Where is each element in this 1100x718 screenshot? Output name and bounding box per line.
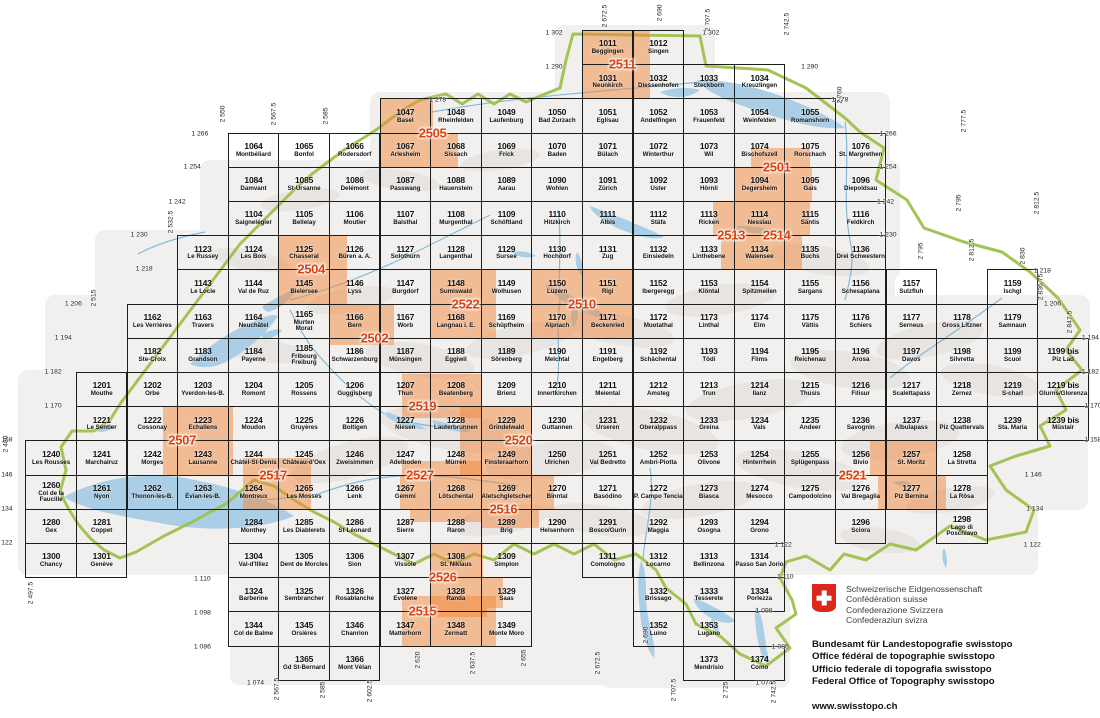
map-sheet-1115[interactable]: 1115Säntis <box>784 201 836 236</box>
map-sheet-1298[interactable]: 1298Lago di Poschiavo <box>936 509 988 544</box>
sheet-name: Muotathal <box>644 323 673 329</box>
map-sheet-1278[interactable]: 1278La Rösa <box>936 475 988 510</box>
sheet-name: Morges <box>141 460 163 466</box>
map-sheet-1216[interactable]: 1216Filisur <box>835 372 887 407</box>
map-sheet-1179[interactable]: 1179Samnaun <box>987 304 1039 339</box>
map-sheet-1261[interactable]: 1261Nyon <box>76 475 128 510</box>
grid-northing-label: 1 254 <box>880 163 897 170</box>
map-sheet-1033[interactable]: 1033Steckborn <box>683 64 735 99</box>
map-sheet-1131[interactable]: 1131Zug <box>582 235 634 270</box>
map-sheet-1034[interactable]: 1034Kreuzlingen <box>734 64 786 99</box>
sheet-name: St. Niklaus <box>440 562 472 568</box>
map-sheet-1281[interactable]: 1281Coppet <box>76 509 128 544</box>
map-sheet-1324[interactable]: 1324Barberine <box>228 577 280 612</box>
map-sheet-1290[interactable]: 1290Helsenhorn <box>531 509 583 544</box>
map-sheet-1210[interactable]: 1210Innertkirchen <box>531 372 583 407</box>
map-sheet-1069[interactable]: 1069Frick <box>481 133 533 168</box>
map-sheet-1163[interactable]: 1163Travers <box>177 304 229 339</box>
sheet-name: Balsthal <box>393 220 417 226</box>
map-sheet-1246[interactable]: 1246Zweisimmen <box>329 440 381 475</box>
sheet-name: Sierre <box>397 528 415 534</box>
map-sheet-1185[interactable]: 1185Fribourg Freiburg <box>278 338 330 373</box>
grid-easting-label: 2 742.5 <box>783 13 790 36</box>
sheet-name: Bosco/Gurin <box>589 528 626 534</box>
sheet-name: Sion <box>348 562 361 568</box>
sheet-name: Val Bedretto <box>590 460 626 466</box>
composite-label-2501: 2501 <box>763 159 791 174</box>
map-sheet-1260[interactable]: 1260Col de la Faucille <box>25 475 77 510</box>
map-sheet-1184[interactable]: 1184Payerne <box>228 338 280 373</box>
map-sheet-1344[interactable]: 1344Col de Balme <box>228 611 280 646</box>
map-sheet-1196[interactable]: 1196Arosa <box>835 338 887 373</box>
sheet-name: Flims <box>751 357 767 363</box>
map-sheet-1253[interactable]: 1253Olivone <box>683 440 735 475</box>
map-sheet-1219[interactable]: 1219S-charl <box>987 372 1039 407</box>
map-sheet-1296[interactable]: 1296Sciora <box>835 509 887 544</box>
sheet-name: La Rösa <box>950 494 974 500</box>
map-sheet-1275[interactable]: 1275Campodolcino <box>784 475 836 510</box>
map-sheet-1110[interactable]: 1110Hitzkirch <box>531 201 583 236</box>
map-sheet-1177[interactable]: 1177Serneus <box>886 304 938 339</box>
sheet-name: Zermatt <box>445 631 468 637</box>
map-sheet-1332[interactable]: 1332Brissago <box>633 577 685 612</box>
map-sheet-1232[interactable]: 1232Oberalppass <box>633 406 685 441</box>
map-sheet-1226[interactable]: 1226Boltigen <box>329 406 381 441</box>
sheet-name: Rheinfelden <box>438 118 473 124</box>
map-sheet-1183[interactable]: 1183Grandson <box>177 338 229 373</box>
map-sheet-1252[interactable]: 1252Ambri-Piotta <box>633 440 685 475</box>
map-sheet-1157[interactable]: 1157Sulzfluh <box>886 269 938 304</box>
map-sheet-1189[interactable]: 1189Sörenberg <box>481 338 533 373</box>
map-sheet-1092[interactable]: 1092Uster <box>633 167 685 202</box>
map-sheet-1108[interactable]: 1108Murgenthal <box>430 201 482 236</box>
sheet-name: Orsières <box>292 631 317 637</box>
map-sheet-1304[interactable]: 1304Val-d'Illiez <box>228 543 280 578</box>
sheet-name: Basódino <box>594 494 622 500</box>
sheet-name: Greina <box>699 425 719 431</box>
map-sheet-1073[interactable]: 1073Wil <box>683 133 735 168</box>
map-sheet-1107[interactable]: 1107Balsthal <box>380 201 432 236</box>
map-sheet-1263[interactable]: 1263Évian-les-B. <box>177 475 229 510</box>
map-sheet-1268[interactable]: 1268Lötschental <box>430 475 482 510</box>
map-sheet-1262[interactable]: 1262Thonon-les-B. <box>127 475 179 510</box>
map-sheet-1326[interactable]: 1326Rosablanche <box>329 577 381 612</box>
map-sheet-1348[interactable]: 1348Zermatt <box>430 611 482 646</box>
map-sheet-1153[interactable]: 1153Klöntal <box>683 269 735 304</box>
confederation-line-rm: Confederaziun svizra <box>846 615 982 625</box>
map-sheet-1198[interactable]: 1198Silvretta <box>936 338 988 373</box>
map-sheet-1374[interactable]: 1374Como <box>734 646 786 681</box>
map-sheet-1193[interactable]: 1193Tödi <box>683 338 735 373</box>
map-sheet-1312[interactable]: 1312Locarno <box>633 543 685 578</box>
grid-northing-label: 1 242 <box>877 199 894 206</box>
map-sheet-1143[interactable]: 1143Le Locle <box>177 269 229 304</box>
map-sheet-1235[interactable]: 1235Andeer <box>784 406 836 441</box>
map-sheet-1156[interactable]: 1156Schesaplana <box>835 269 887 304</box>
map-sheet-1293[interactable]: 1293Osogna <box>683 509 735 544</box>
map-sheet-1155[interactable]: 1155Sargans <box>784 269 836 304</box>
grid-northing-label: 1 134 <box>1026 505 1043 512</box>
sheet-name: Mont Vélan <box>338 665 371 671</box>
grid-easting-label: 2 585 <box>323 107 330 124</box>
map-sheet-1049[interactable]: 1049Laufenburg <box>481 98 533 133</box>
sheet-name: Zug <box>602 254 613 260</box>
sheet-name: Moudon <box>241 425 265 431</box>
map-sheet-1053[interactable]: 1053Frauenfeld <box>683 98 735 133</box>
sheet-name: Arosa <box>852 357 870 363</box>
map-sheet-1202[interactable]: 1202Orbe <box>127 372 179 407</box>
map-sheet-1130[interactable]: 1130Hochdorf <box>531 235 583 270</box>
map-sheet-1234[interactable]: 1234Vals <box>734 406 786 441</box>
map-sheet-1300[interactable]: 1300Chancy <box>25 543 77 578</box>
map-sheet-1285[interactable]: 1285Les Diablerets <box>278 509 330 544</box>
map-sheet-1175[interactable]: 1175Vättis <box>784 304 836 339</box>
map-sheet-1096[interactable]: 1096Diepoldsau <box>835 167 887 202</box>
map-sheet-1231[interactable]: 1231Urseren <box>582 406 634 441</box>
map-sheet-1349[interactable]: 1349Monte Moro <box>481 611 533 646</box>
map-sheet-1128[interactable]: 1128Langenthal <box>430 235 482 270</box>
sheet-name: Eggiwil <box>445 357 467 363</box>
sheet-name: Ilanz <box>753 391 767 397</box>
grid-northing-label: 1 194 <box>1082 334 1099 341</box>
map-sheet-1239[interactable]: 1239Sta. Maria <box>987 406 1039 441</box>
map-sheet-1095[interactable]: 1095Gais <box>784 167 836 202</box>
sheet-name: Val-d'Illiez <box>239 562 269 568</box>
map-sheet-1201[interactable]: 1201Mouthe <box>76 372 128 407</box>
map-sheet-1124[interactable]: 1124Les Bois <box>228 235 280 270</box>
map-sheet-1286[interactable]: 1286St-Léonard <box>329 509 381 544</box>
grid-easting-label: 2 795 <box>917 242 924 259</box>
map-sheet-1365[interactable]: 1365Gd St-Bernard <box>278 646 330 681</box>
sheet-name: Albulapass <box>895 425 928 431</box>
grid-northing-label: 1 098 <box>194 610 211 617</box>
sheet-name: Les Bois <box>241 254 267 260</box>
map-sheet-1071[interactable]: 1071Bülach <box>582 133 634 168</box>
map-sheet-1087[interactable]: 1087Passwang <box>380 167 432 202</box>
sheet-name: Mesocco <box>746 494 772 500</box>
map-sheet-1090[interactable]: 1090Wohlen <box>531 167 583 202</box>
sheet-name: Olivone <box>698 460 721 466</box>
sheet-name: Lago di Poschiavo <box>937 525 987 538</box>
map-sheet-1217[interactable]: 1217Scalettapass <box>886 372 938 407</box>
sheet-name: Brienz <box>497 391 516 397</box>
sheet-name: Gemmi <box>395 494 416 500</box>
map-sheet-1329[interactable]: 1329Saas <box>481 577 533 612</box>
sheet-name: Gd St-Bernard <box>283 665 325 671</box>
map-sheet-1270[interactable]: 1270Binntal <box>531 475 583 510</box>
map-sheet-1203[interactable]: 1203Yverdon-les-B. <box>177 372 229 407</box>
map-sheet-1239bis[interactable]: 1239 bisMüstair <box>1037 406 1089 441</box>
map-sheet-1012[interactable]: 1012Singen <box>633 30 685 65</box>
map-sheet-1084[interactable]: 1084Damvant <box>228 167 280 202</box>
confederation-line-it: Confederazione Svizzera <box>846 605 982 615</box>
map-sheet-1346[interactable]: 1346Chanrion <box>329 611 381 646</box>
map-sheet-1221[interactable]: 1221Le Sentier <box>76 406 128 441</box>
map-sheet-1345[interactable]: 1345Orsières <box>278 611 330 646</box>
map-sheet-1149[interactable]: 1149Wolhusen <box>481 269 533 304</box>
grid-northing-label: 1 278 <box>429 97 446 104</box>
map-sheet-1075[interactable]: 1075Rorschach <box>784 133 836 168</box>
map-sheet-1173[interactable]: 1173Linthal <box>683 304 735 339</box>
map-sheet-1172[interactable]: 1172Muotathal <box>633 304 685 339</box>
sheet-name: Delémont <box>341 186 369 192</box>
map-sheet-1273[interactable]: 1273Biasca <box>683 475 735 510</box>
grid-northing-label: 1 206 <box>65 300 82 307</box>
map-sheet-1277[interactable]: 1277Piz Bernina <box>886 475 938 510</box>
sheet-name: Saignelégier <box>235 220 272 226</box>
map-sheet-1032[interactable]: 1032Diessenhofen <box>633 64 685 99</box>
map-sheet-1255[interactable]: 1255Splügenpass <box>784 440 836 475</box>
sheet-name: Hauenstein <box>439 186 472 192</box>
map-sheet-1254[interactable]: 1254Hinterrhein <box>734 440 786 475</box>
map-sheet-1136[interactable]: 1136Drei Schwestern <box>835 235 887 270</box>
sheet-name: Arlesheim <box>390 152 420 158</box>
map-sheet-1174[interactable]: 1174Elm <box>734 304 786 339</box>
map-sheet-1152[interactable]: 1152Ibergeregg <box>633 269 685 304</box>
sheet-name: Büren a. A. <box>338 254 370 260</box>
map-sheet-1307[interactable]: 1307Vissoie <box>380 543 432 578</box>
map-sheet-1241[interactable]: 1241Marchairuz <box>76 440 128 475</box>
map-sheet-1132[interactable]: 1132Einsiedeln <box>633 235 685 270</box>
sheet-name: Porlezza <box>747 596 772 602</box>
composite-label-2527: 2527 <box>406 467 434 482</box>
map-sheet-1211[interactable]: 1211Meiental <box>582 372 634 407</box>
map-sheet-1144[interactable]: 1144Val de Ruz <box>228 269 280 304</box>
sheet-name: Helsenhorn <box>540 528 574 534</box>
map-sheet-1178[interactable]: 1178Gross Litzner <box>936 304 988 339</box>
sheet-name: Locarno <box>646 562 670 568</box>
map-sheet-1208[interactable]: 1208Beatenberg <box>430 372 482 407</box>
grid-northing-label: 1 206 <box>1044 300 1061 307</box>
map-sheet-1272[interactable]: 1272P. Campo Tencia <box>633 475 685 510</box>
map-sheet-1250[interactable]: 1250Ulrichen <box>531 440 583 475</box>
sheet-name: Dent de Morcles <box>280 562 328 568</box>
map-sheet-1248[interactable]: 1248Mürren <box>430 440 482 475</box>
sheet-name: Serneus <box>899 323 923 329</box>
map-sheet-1271[interactable]: 1271Basódino <box>582 475 634 510</box>
grid-northing-label: 1 086 <box>194 644 211 651</box>
composite-label-2513: 2513 <box>717 228 745 243</box>
map-sheet-1123[interactable]: 1123Le Russey <box>177 235 229 270</box>
map-sheet-1065[interactable]: 1065Bonfol <box>278 133 330 168</box>
sheet-name: Beckenried <box>591 323 624 329</box>
map-sheet-1213[interactable]: 1213Trun <box>683 372 735 407</box>
map-sheet-1050[interactable]: 1050Bad Zurzach <box>531 98 583 133</box>
map-sheet-1147[interactable]: 1147Burgdorf <box>380 269 432 304</box>
grid-northing-label: 1 254 <box>184 163 201 170</box>
sheet-name: Finsteraarhorn <box>485 460 529 466</box>
map-sheet-1164[interactable]: 1164Neuchâtel <box>228 304 280 339</box>
sheet-name: Chancy <box>40 562 62 568</box>
map-sheet-1162[interactable]: 1162Les Verrières <box>127 304 179 339</box>
map-sheet-1206[interactable]: 1206Guggisberg <box>329 372 381 407</box>
map-sheet-1274[interactable]: 1274Mesocco <box>734 475 786 510</box>
swiss-flag-logo <box>812 584 836 612</box>
map-sheet-1190[interactable]: 1190Melchtal <box>531 338 583 373</box>
map-sheet-1301[interactable]: 1301Genève <box>76 543 128 578</box>
map-sheet-1194[interactable]: 1194Flims <box>734 338 786 373</box>
map-sheet-1280[interactable]: 1280Gex <box>25 509 77 544</box>
map-sheet-1313[interactable]: 1313Bellinzona <box>683 543 735 578</box>
sheet-name: Sumiswald <box>440 289 472 295</box>
composite-label-2521: 2521 <box>839 467 867 482</box>
composite-label-2507: 2507 <box>168 433 196 448</box>
sheet-name: Meiental <box>595 391 620 397</box>
map-sheet-1169[interactable]: 1169Schüpfheim <box>481 304 533 339</box>
map-sheet-1176[interactable]: 1176Schiers <box>835 304 887 339</box>
sheet-name: Mürren <box>445 460 466 466</box>
sheet-name: Coppet <box>91 528 112 534</box>
map-sheet-1291[interactable]: 1291Bosco/Gurin <box>582 509 634 544</box>
map-sheet-1112[interactable]: 1112Stäfa <box>633 201 685 236</box>
map-sheet-1159[interactable]: 1159Ischgl <box>987 269 1039 304</box>
composite-label-2515: 2515 <box>409 604 437 619</box>
map-sheet-1191[interactable]: 1191Engelberg <box>582 338 634 373</box>
map-sheet-1111[interactable]: 1111Albis <box>582 201 634 236</box>
map-sheet-1146[interactable]: 1146Lyss <box>329 269 381 304</box>
map-sheet-1251[interactable]: 1251Val Bedretto <box>582 440 634 475</box>
map-sheet-1054[interactable]: 1054Weinfelden <box>734 98 786 133</box>
map-sheet-1309[interactable]: 1309Simplon <box>481 543 533 578</box>
map-sheet-1066[interactable]: 1066Rodersdorf <box>329 133 381 168</box>
map-sheet-1214[interactable]: 1214Ilanz <box>734 372 786 407</box>
map-sheet-1288[interactable]: 1288Raron <box>430 509 482 544</box>
map-sheet-1051[interactable]: 1051Eglisau <box>582 98 634 133</box>
map-sheet-1306[interactable]: 1306Sion <box>329 543 381 578</box>
map-sheet-1218[interactable]: 1218Zernez <box>936 372 988 407</box>
map-sheet-1070[interactable]: 1070Baden <box>531 133 583 168</box>
map-sheet-1188[interactable]: 1188Eggiwil <box>430 338 482 373</box>
sheet-name: Payerne <box>241 357 265 363</box>
map-sheet-1294[interactable]: 1294Grono <box>734 509 786 544</box>
map-sheet-1224[interactable]: 1224Moudon <box>228 406 280 441</box>
map-sheet-1292[interactable]: 1292Maggia <box>633 509 685 544</box>
office-line-fr: Office fédéral de topographie swisstopo <box>812 651 1094 664</box>
map-sheet-1238[interactable]: 1238Piz Quattervals <box>936 406 988 441</box>
map-sheet-1127[interactable]: 1127Solothurn <box>380 235 432 270</box>
map-sheet-1192[interactable]: 1192Schächental <box>633 338 685 373</box>
map-sheet-1373[interactable]: 1373Mendrisio <box>683 646 735 681</box>
sheet-name: Matterhorn <box>389 631 421 637</box>
map-sheet-1233[interactable]: 1233Greina <box>683 406 735 441</box>
map-sheet-1165[interactable]: 1165Murten Morat <box>278 304 330 339</box>
sheet-name: Piz Bernina <box>894 494 928 500</box>
map-sheet-1091[interactable]: 1091Zürich <box>582 167 634 202</box>
swisstopo-url[interactable]: www.swisstopo.ch <box>812 701 1094 712</box>
map-sheet-1093[interactable]: 1093Hörnli <box>683 167 735 202</box>
map-sheet-1126[interactable]: 1126Büren a. A. <box>329 235 381 270</box>
map-sheet-1236[interactable]: 1236Savognin <box>835 406 887 441</box>
map-sheet-1311[interactable]: 1311Comologno <box>582 543 634 578</box>
map-sheet-1325[interactable]: 1325Sembrancher <box>278 577 330 612</box>
map-sheet-1333[interactable]: 1333Tesserete <box>683 577 735 612</box>
map-sheet-1064[interactable]: 1064Montbéliard <box>228 133 280 168</box>
sheet-name: Bonfol <box>294 152 314 158</box>
map-sheet-1353[interactable]: 1353Lugano <box>683 611 735 646</box>
map-sheet-1266[interactable]: 1266Lenk <box>329 475 381 510</box>
map-sheet-1287[interactable]: 1287Sierre <box>380 509 432 544</box>
map-sheet-1089[interactable]: 1089Aarau <box>481 167 533 202</box>
sheet-name: Degersheim <box>742 186 777 192</box>
map-sheet-1204[interactable]: 1204Romont <box>228 372 280 407</box>
map-sheet-1205[interactable]: 1205Rossens <box>278 372 330 407</box>
sheet-name: Raron <box>447 528 465 534</box>
sheet-name: Oberalppass <box>640 425 678 431</box>
sheet-name: Winterthur <box>643 152 674 158</box>
map-sheet-1240[interactable]: 1240Les Rousses <box>25 440 77 475</box>
map-sheet-1215[interactable]: 1215Thusis <box>784 372 836 407</box>
sheet-name: Murgenthal <box>439 220 472 226</box>
sheet-name: Eglisau <box>597 118 619 124</box>
map-sheet-1237[interactable]: 1237Albulapass <box>886 406 938 441</box>
map-sheet-1209[interactable]: 1209Brienz <box>481 372 533 407</box>
sheet-name: Rosablanche <box>335 596 374 602</box>
map-sheet-1105[interactable]: 1105Bellelay <box>278 201 330 236</box>
sheet-name: Boltigen <box>342 425 367 431</box>
map-sheet-1109[interactable]: 1109Schöftland <box>481 201 533 236</box>
sheet-name: Kreuzlingen <box>742 83 777 89</box>
map-sheet-1195[interactable]: 1195Reichenau <box>784 338 836 373</box>
grid-northing-label: 1 110 <box>777 574 794 581</box>
map-sheet-1086[interactable]: 1086Delémont <box>329 167 381 202</box>
map-sheet-1085[interactable]: 1085St-Ursanne <box>278 167 330 202</box>
sheet-name: Innertkirchen <box>537 391 576 397</box>
sheet-name: Hörnli <box>700 186 718 192</box>
map-sheet-1072[interactable]: 1072Winterthur <box>633 133 685 168</box>
sheet-name: Tödi <box>702 357 715 363</box>
map-sheet-1199[interactable]: 1199Scuol <box>987 338 1039 373</box>
sheet-name: Splügenpass <box>791 460 830 466</box>
sheet-name: Ulrichen <box>545 460 570 466</box>
map-sheet-1154[interactable]: 1154Spitzmeilen <box>734 269 786 304</box>
map-sheet-1182[interactable]: 1182Ste-Croix <box>127 338 179 373</box>
map-sheet-1088[interactable]: 1088Hauenstein <box>430 167 482 202</box>
map-sheet-1366[interactable]: 1366Mont Vélan <box>329 646 381 681</box>
map-sheet-1257[interactable]: 1257St. Moritz <box>886 440 938 475</box>
sheet-name: Hochdorf <box>543 254 571 260</box>
sheet-name: Vättis <box>802 323 819 329</box>
sheet-name: Col de la Faucille <box>26 491 76 504</box>
map-sheet-1212[interactable]: 1212Amsteg <box>633 372 685 407</box>
map-sheet-1104[interactable]: 1104Saignelégier <box>228 201 280 236</box>
map-sheet-1197[interactable]: 1197Davos <box>886 338 938 373</box>
map-sheet-1129[interactable]: 1129Sursee <box>481 235 533 270</box>
grid-easting-label: 2 532.5 <box>167 210 174 233</box>
sheet-name: Stäfa <box>651 220 666 226</box>
sheet-name: Bad Zurzach <box>539 118 576 124</box>
sheet-name: Lausanne <box>188 460 217 466</box>
sheet-name: Grindelwald <box>489 425 524 431</box>
sheet-name: Como <box>751 665 769 671</box>
map-sheet-1230[interactable]: 1230Guttannen <box>531 406 583 441</box>
map-sheet-1258[interactable]: 1258La Stretta <box>936 440 988 475</box>
map-sheet-1284[interactable]: 1284Monthey <box>228 509 280 544</box>
map-sheet-1228[interactable]: 1228Lauterbrunnen <box>430 406 482 441</box>
sheet-name: Ambri-Piotta <box>640 460 677 466</box>
map-sheet-1106[interactable]: 1106Moutier <box>329 201 381 236</box>
sheet-name: Guggisberg <box>337 391 372 397</box>
sheet-name: Ibergeregg <box>642 289 674 295</box>
map-sheet-1055[interactable]: 1055Romanshorn <box>784 98 836 133</box>
map-sheet-1052[interactable]: 1052Andelfingen <box>633 98 685 133</box>
sheet-name: Klöntal <box>698 289 719 295</box>
map-sheet-1305[interactable]: 1305Dent de Morcles <box>278 543 330 578</box>
map-sheet-1352[interactable]: 1352Luino <box>633 611 685 646</box>
map-sheet-1225[interactable]: 1225Gruyères <box>278 406 330 441</box>
map-sheet-1135[interactable]: 1135Buchs <box>784 235 836 270</box>
map-sheet-1219bis[interactable]: 1219 bisGlurns/Glorenza <box>1037 372 1089 407</box>
sheet-name: Piz Quattervals <box>940 425 985 431</box>
